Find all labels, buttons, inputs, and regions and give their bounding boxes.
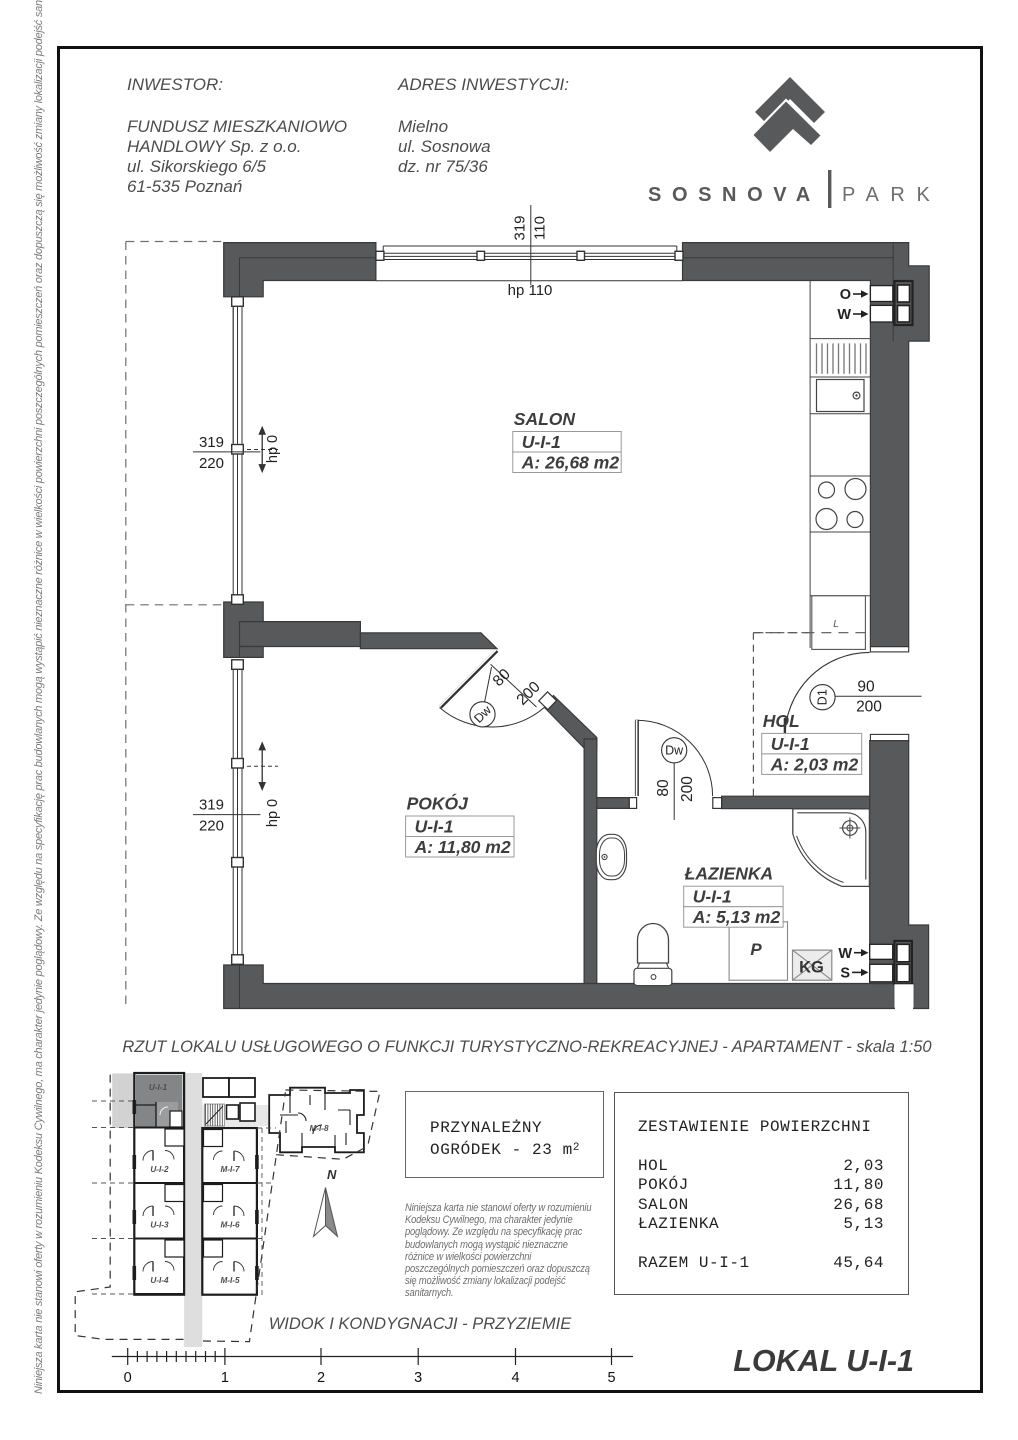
svg-text:L: L — [833, 619, 839, 630]
svg-text:2: 2 — [317, 1370, 325, 1386]
svg-text:80: 80 — [490, 665, 514, 689]
svg-text:220: 220 — [199, 455, 224, 472]
svg-text:A: 26,68 m2: A: 26,68 m2 — [521, 453, 620, 473]
svg-text:U-I-1: U-I-1 — [149, 1083, 168, 1092]
svg-text:319: 319 — [199, 434, 224, 451]
svg-text:U-I-2: U-I-2 — [150, 1165, 169, 1174]
svg-text:W: W — [838, 946, 852, 962]
svg-text:HOL: HOL — [763, 711, 800, 731]
svg-text:U-I-1: U-I-1 — [771, 734, 810, 754]
svg-text:319: 319 — [512, 215, 529, 240]
svg-text:A: 11,80 m2: A: 11,80 m2 — [414, 837, 511, 857]
svg-text:A: 2,03 m2: A: 2,03 m2 — [770, 754, 859, 774]
svg-text:A: 5,13 m2: A: 5,13 m2 — [692, 907, 781, 927]
svg-text:S: S — [840, 966, 850, 982]
svg-text:U-I-4: U-I-4 — [150, 1276, 169, 1285]
svg-text:M-I-7: M-I-7 — [220, 1165, 240, 1174]
svg-text:200: 200 — [513, 678, 544, 709]
svg-text:W: W — [837, 307, 851, 323]
svg-text:M-I-8: M-I-8 — [309, 1124, 329, 1133]
svg-text:110: 110 — [532, 216, 549, 240]
svg-text:4: 4 — [511, 1370, 519, 1386]
svg-text:M-I-6: M-I-6 — [220, 1221, 240, 1230]
svg-text:200: 200 — [856, 699, 882, 716]
svg-text:200: 200 — [679, 776, 696, 802]
svg-text:319: 319 — [199, 797, 224, 814]
svg-text:220: 220 — [199, 818, 224, 835]
svg-text:5: 5 — [607, 1370, 615, 1386]
svg-text:P: P — [750, 940, 762, 959]
svg-text:3: 3 — [414, 1370, 422, 1386]
svg-text:U-I-1: U-I-1 — [693, 887, 732, 907]
svg-text:O: O — [840, 287, 851, 303]
svg-text:U-I-1: U-I-1 — [415, 817, 454, 837]
svg-text:U-I-3: U-I-3 — [150, 1221, 169, 1230]
svg-text:POKÓJ: POKÓJ — [407, 793, 470, 814]
svg-text:hp 110: hp 110 — [508, 282, 553, 299]
svg-text:N: N — [327, 1167, 337, 1182]
svg-text:hp 0: hp 0 — [265, 435, 281, 463]
svg-text:SALON: SALON — [514, 409, 576, 429]
svg-text:KG: KG — [799, 959, 824, 977]
svg-text:ŁAZIENKA: ŁAZIENKA — [684, 864, 773, 884]
svg-text:Dw: Dw — [665, 744, 684, 758]
svg-text:90: 90 — [857, 679, 875, 696]
svg-text:1: 1 — [221, 1370, 229, 1386]
svg-text:80: 80 — [655, 779, 672, 797]
svg-text:hp 0: hp 0 — [265, 799, 281, 827]
svg-text:0: 0 — [124, 1370, 132, 1386]
svg-text:U-I-1: U-I-1 — [522, 432, 561, 452]
svg-text:D1: D1 — [816, 689, 830, 705]
svg-text:M-I-5: M-I-5 — [220, 1276, 240, 1285]
